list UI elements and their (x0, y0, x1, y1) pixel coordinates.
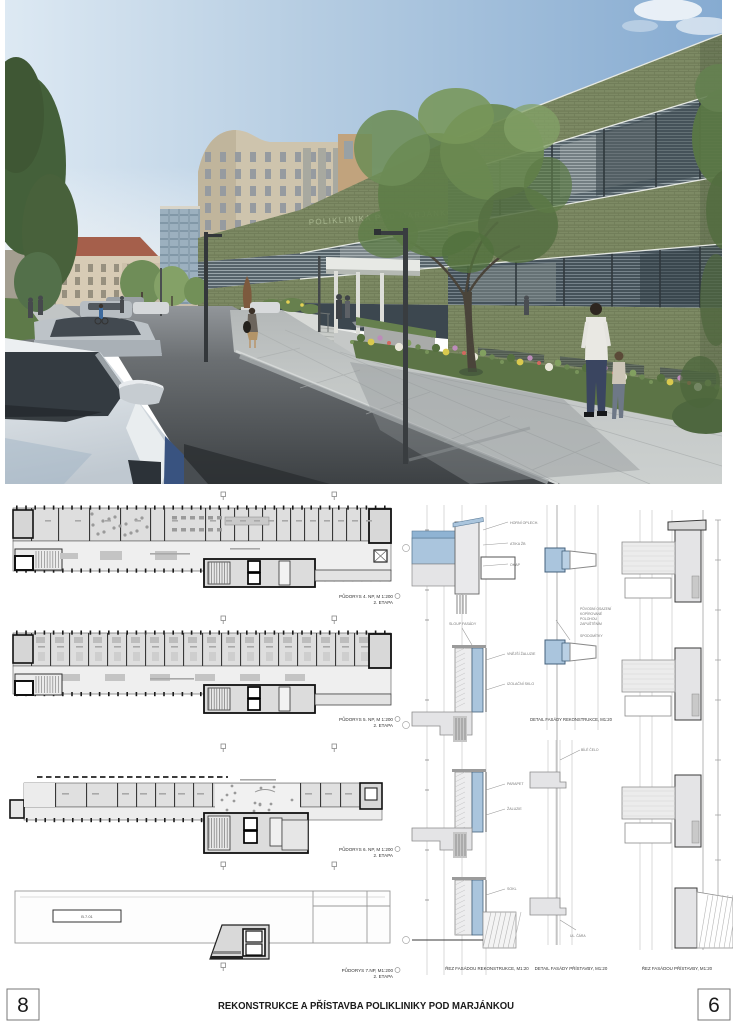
svg-text:VNĚJŠÍ ŽALUZIE: VNĚJŠÍ ŽALUZIE (507, 651, 536, 656)
svg-text:B.7.01: B.7.01 (81, 914, 93, 919)
svg-text:BÍLÉ ČELO: BÍLÉ ČELO (581, 747, 599, 752)
svg-text:SLOUP FASÁDY: SLOUP FASÁDY (449, 622, 477, 626)
svg-text:2. ETAPA: 2. ETAPA (374, 974, 394, 979)
svg-text:PŮDORYS 4. NP, M 1:200: PŮDORYS 4. NP, M 1:200 (339, 593, 393, 599)
svg-text:UL. ČÁRA: UL. ČÁRA (570, 933, 586, 938)
svg-text:ŽALUZIE: ŽALUZIE (507, 806, 522, 811)
svg-text:2. ETAPA: 2. ETAPA (374, 600, 394, 605)
svg-text:ŘEZ FASÁDOU REKONSTRUKCE, M1:2: ŘEZ FASÁDOU REKONSTRUKCE, M1:20 (445, 966, 529, 971)
svg-text:OKAP: OKAP (510, 563, 521, 567)
svg-text:ŘEZ FASÁDOU PŘÍSTAVBY, M1:20: ŘEZ FASÁDOU PŘÍSTAVBY, M1:20 (642, 966, 713, 971)
svg-text:ATIKA ŽB: ATIKA ŽB (510, 541, 526, 546)
svg-text:HORNÍ OPLECH.: HORNÍ OPLECH. (510, 521, 538, 525)
svg-text:IZOLAČNÍ SKLO: IZOLAČNÍ SKLO (507, 681, 534, 686)
svg-text:PŮDORYS 7.NP, M1:200: PŮDORYS 7.NP, M1:200 (342, 967, 394, 973)
svg-text:POLOHOU: POLOHOU (580, 617, 598, 621)
svg-text:8: 8 (17, 994, 29, 1017)
svg-text:PŮDORYS 6. NP, M 1:200: PŮDORYS 6. NP, M 1:200 (339, 846, 393, 852)
svg-text:DETAIL FASÁDY PŘÍSTAVBY, M1:20: DETAIL FASÁDY PŘÍSTAVBY, M1:20 (535, 966, 608, 971)
svg-text:REKONSTRUKCE A PŘÍSTAVBA POLIK: REKONSTRUKCE A PŘÍSTAVBA POLIKLINIKY POD… (218, 999, 514, 1012)
svg-text:2. ETAPA: 2. ETAPA (374, 723, 394, 728)
svg-text:PARAPET: PARAPET (507, 782, 524, 786)
svg-text:PŮDORYS 5. NP, M 1:200: PŮDORYS 5. NP, M 1:200 (339, 716, 393, 722)
svg-text:SOKL: SOKL (507, 887, 517, 891)
svg-text:6: 6 (708, 994, 720, 1017)
svg-text:DETAIL FASÁDY REKONSTRUKCE, M1: DETAIL FASÁDY REKONSTRUKCE, M1:20 (530, 717, 613, 722)
svg-text:KOPÍROVANÉ: KOPÍROVANÉ (580, 611, 603, 616)
svg-text:2. ETAPA: 2. ETAPA (374, 853, 394, 858)
svg-text:SPODOMÍTKY: SPODOMÍTKY (580, 634, 603, 638)
svg-text:PŮVODNÍ OSAZENÍ: PŮVODNÍ OSAZENÍ (580, 606, 611, 611)
svg-text:ZAPUŠTĚNÍM: ZAPUŠTĚNÍM (580, 621, 602, 626)
